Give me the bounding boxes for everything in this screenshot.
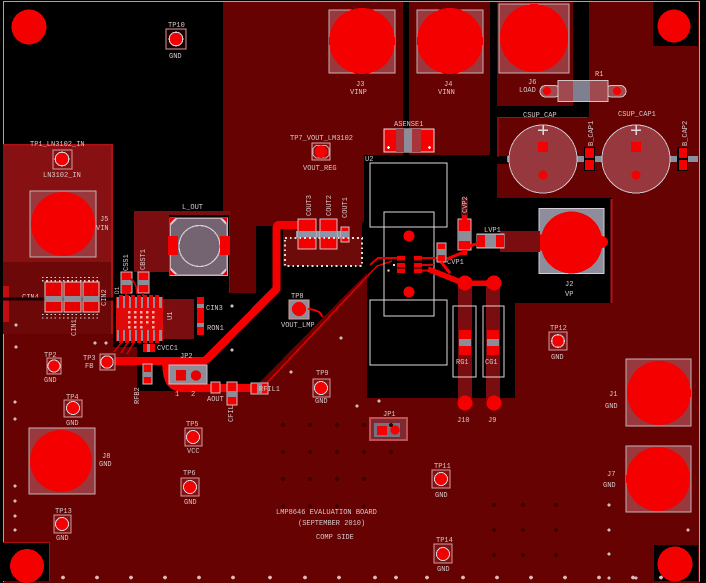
svg-text:VOUT_REG: VOUT_REG (303, 165, 337, 173)
svg-text:1: 1 (175, 391, 179, 399)
svg-text:2: 2 (191, 391, 195, 399)
svg-text:COUT2: COUT2 (326, 195, 334, 216)
svg-text:CIN3: CIN3 (206, 305, 223, 313)
svg-text:TP6: TP6 (183, 470, 196, 478)
svg-text:GND: GND (169, 53, 182, 61)
svg-text:CG1: CG1 (485, 359, 498, 367)
svg-text:LN3102_IN: LN3102_IN (43, 172, 81, 180)
svg-text:GND: GND (184, 499, 197, 507)
svg-text:GND: GND (66, 420, 79, 428)
svg-text:FB: FB (85, 363, 93, 371)
svg-text:D1: D1 (114, 286, 121, 294)
svg-text:GND: GND (605, 403, 618, 411)
svg-text:J2: J2 (565, 281, 573, 289)
svg-text:VIN: VIN (96, 225, 109, 233)
svg-text:COUT1: COUT1 (342, 197, 350, 218)
svg-text:VCC: VCC (187, 448, 200, 456)
svg-text:J6: J6 (528, 79, 536, 87)
svg-text:TP7_VOUT_LM3102: TP7_VOUT_LM3102 (290, 135, 353, 143)
svg-text:(SEPTEMBER 2010): (SEPTEMBER 2010) (298, 520, 365, 528)
svg-text:GND: GND (435, 492, 448, 500)
svg-text:J8: J8 (102, 453, 110, 461)
svg-text:B_CAP2: B_CAP2 (682, 121, 690, 146)
svg-text:GND: GND (603, 482, 616, 490)
svg-text:VINP: VINP (350, 89, 367, 97)
svg-text:GND: GND (99, 461, 112, 469)
svg-text:J10: J10 (457, 417, 470, 425)
svg-text:CIN1: CIN1 (71, 319, 79, 336)
svg-text:B_CAP1: B_CAP1 (588, 121, 596, 146)
svg-text:GND: GND (44, 377, 57, 385)
svg-text:CSUP_CAP1: CSUP_CAP1 (618, 111, 656, 119)
svg-text:RFIL1: RFIL1 (259, 386, 280, 394)
svg-text:COMP SIDE: COMP SIDE (316, 534, 354, 542)
svg-text:CIN2: CIN2 (101, 289, 109, 306)
svg-text:TP10: TP10 (168, 22, 185, 30)
svg-text:CVP2: CVP2 (462, 196, 470, 213)
svg-text:VP: VP (565, 291, 573, 299)
svg-text:J3: J3 (356, 81, 364, 89)
svg-text:GND: GND (315, 398, 328, 406)
svg-text:CVP1: CVP1 (447, 259, 464, 267)
svg-text:RFB2: RFB2 (134, 387, 142, 404)
svg-text:L_OUT: L_OUT (182, 204, 203, 212)
svg-text:AOUT: AOUT (207, 396, 224, 404)
svg-text:TP3: TP3 (83, 355, 96, 363)
svg-text:J5: J5 (100, 216, 108, 224)
svg-text:JP2: JP2 (180, 353, 193, 361)
svg-text:U1: U1 (167, 312, 175, 320)
svg-text:RON1: RON1 (207, 325, 224, 333)
svg-text:VINN: VINN (438, 89, 455, 97)
svg-text:R1: R1 (595, 71, 603, 79)
svg-text:TP1_LN3102_IN: TP1_LN3102_IN (30, 141, 85, 149)
svg-text:GND: GND (437, 566, 450, 574)
svg-text:RG1: RG1 (456, 359, 469, 367)
svg-text:TP9: TP9 (316, 370, 329, 378)
svg-text:CSUP_CAP: CSUP_CAP (523, 112, 557, 120)
svg-text:GND: GND (551, 354, 564, 362)
svg-text:LOAD: LOAD (519, 87, 536, 95)
svg-text:CBST1: CBST1 (140, 249, 148, 270)
svg-text:VOUT_LMP: VOUT_LMP (281, 322, 315, 330)
svg-text:LMP8646 EVALUATION BOARD: LMP8646 EVALUATION BOARD (276, 509, 377, 517)
svg-text:J4: J4 (444, 81, 452, 89)
svg-text:J1: J1 (609, 391, 617, 399)
svg-text:CVCC1: CVCC1 (157, 345, 178, 353)
svg-text:J9: J9 (488, 417, 496, 425)
svg-text:COUT3: COUT3 (306, 195, 314, 216)
svg-text:GND: GND (56, 535, 69, 543)
svg-text:J7: J7 (607, 471, 615, 479)
svg-text:ASENSE1: ASENSE1 (394, 121, 423, 129)
svg-text:CSS1: CSS1 (123, 254, 131, 271)
